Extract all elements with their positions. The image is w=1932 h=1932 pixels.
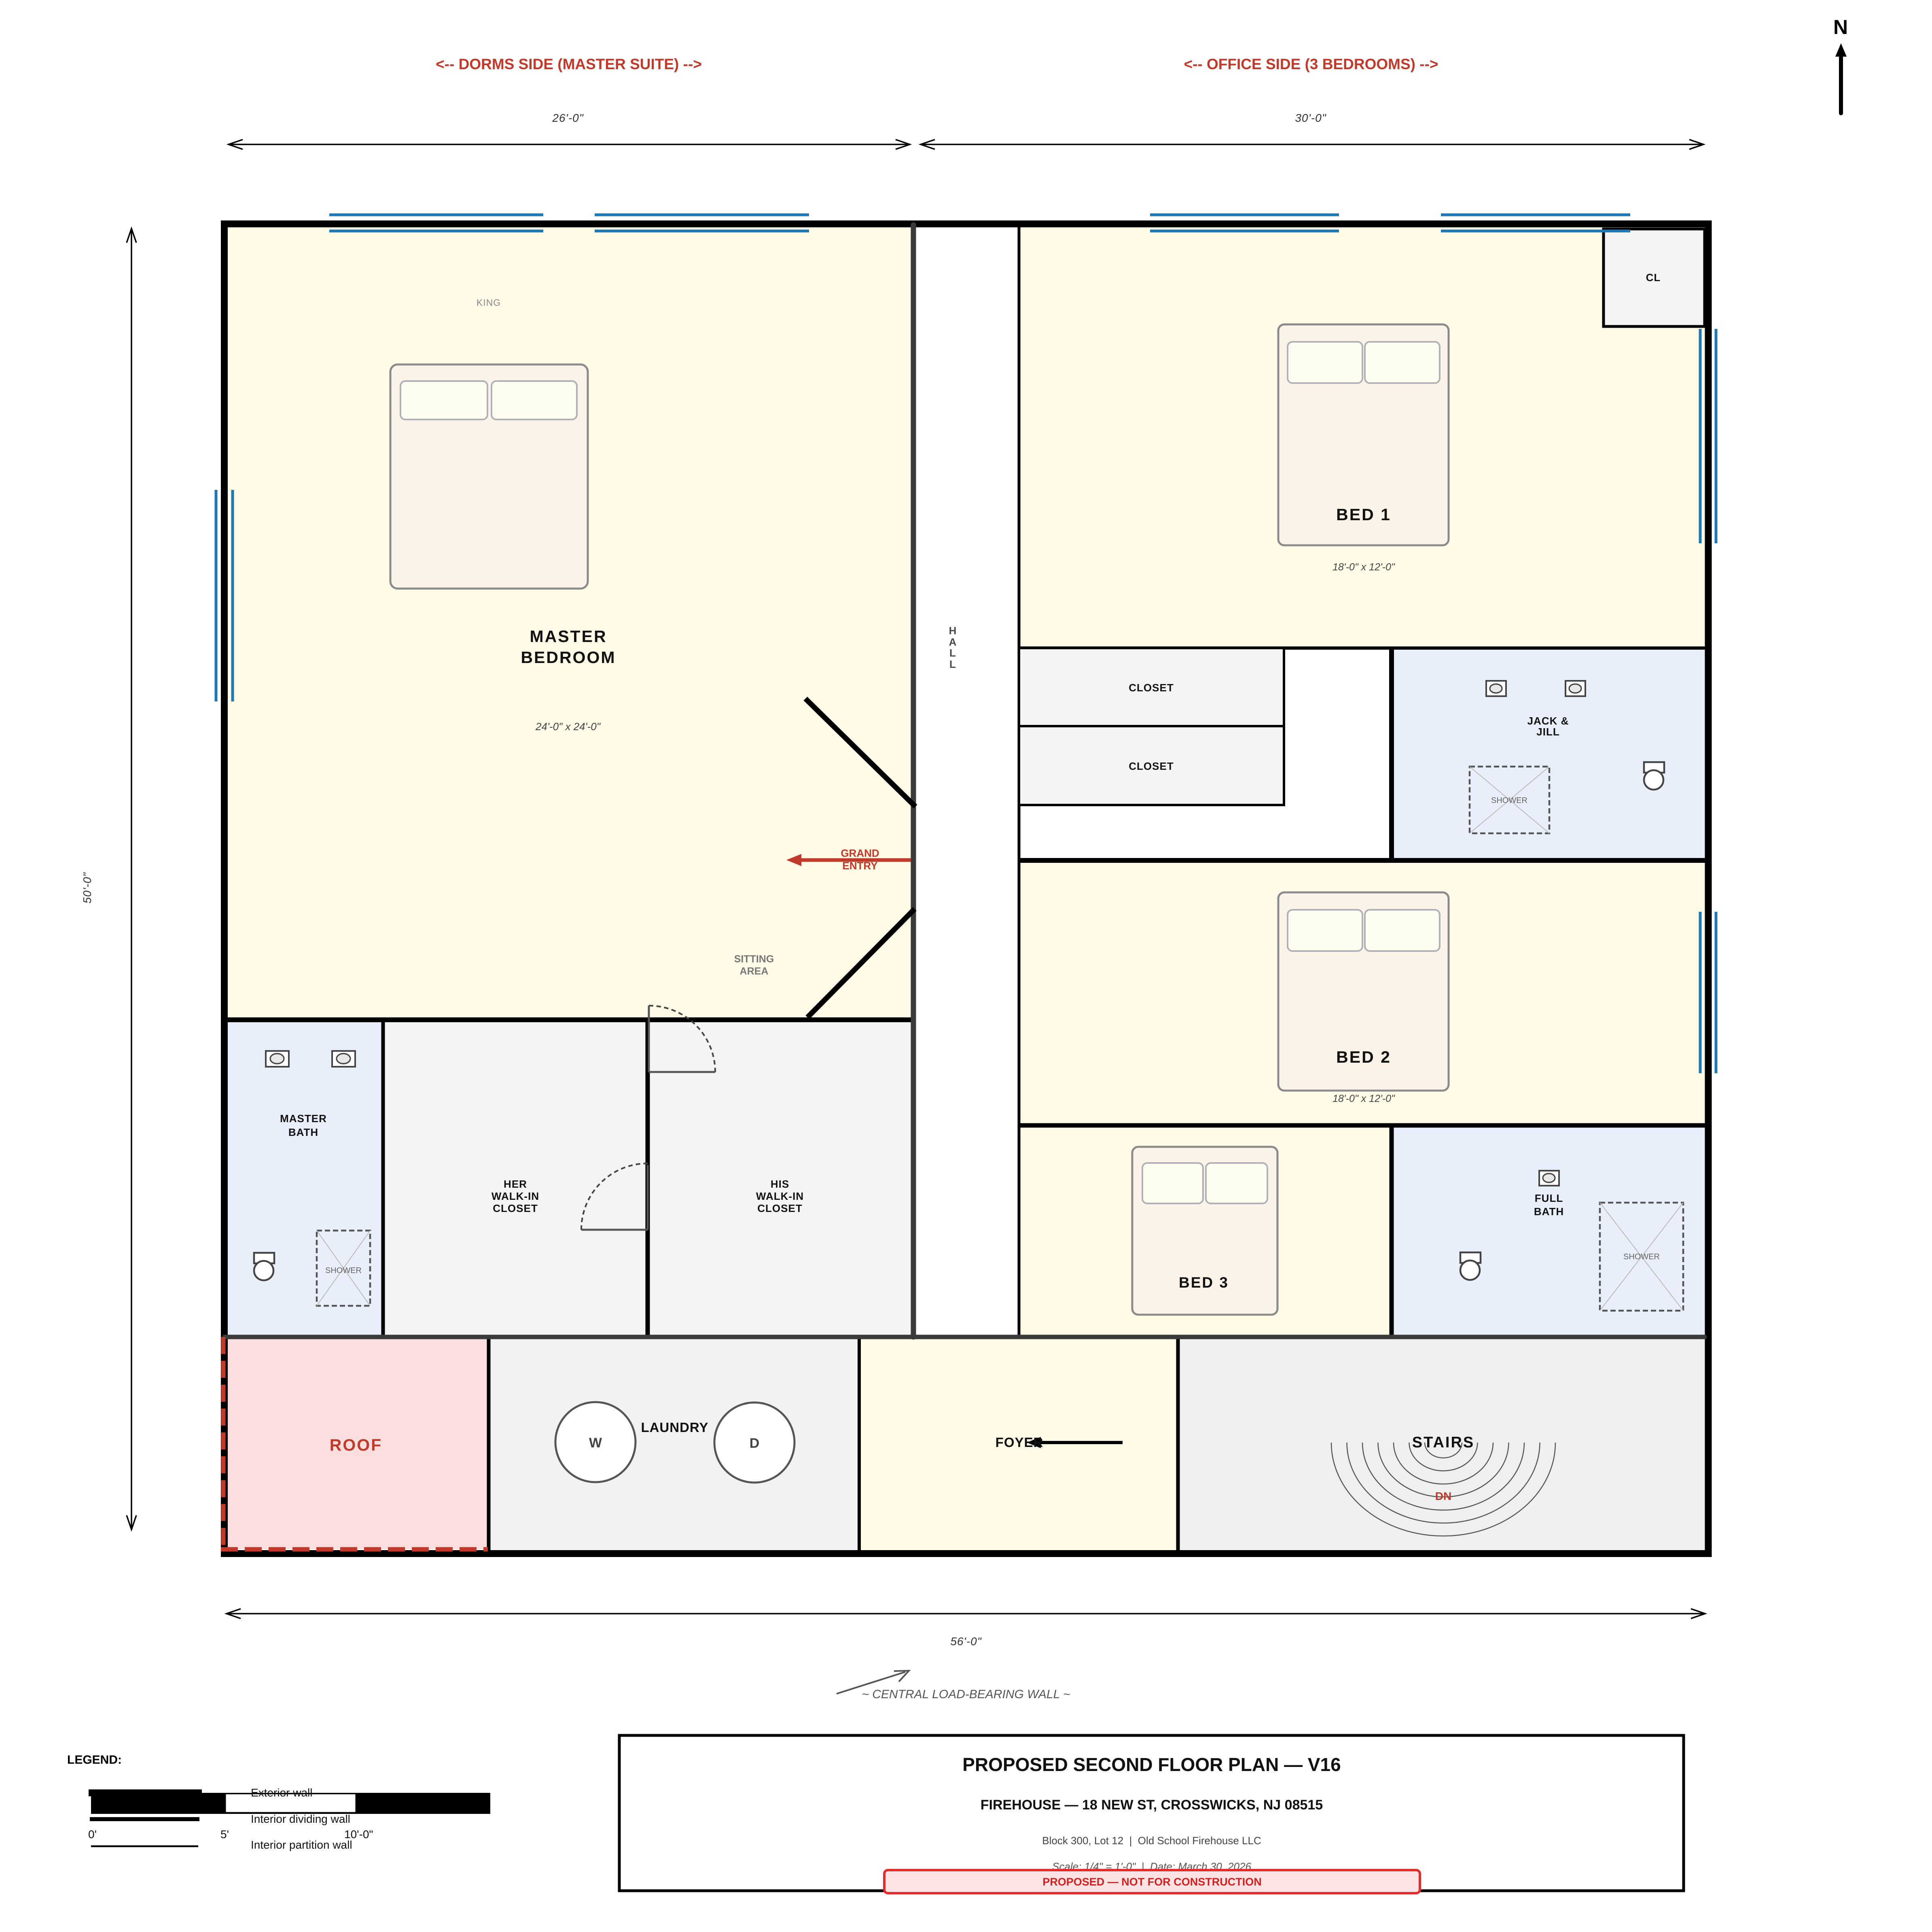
svg-text:GRAND: GRAND [841, 847, 879, 859]
svg-text:WALK-IN: WALK-IN [756, 1190, 804, 1202]
svg-text:CL: CL [1646, 271, 1661, 284]
svg-text:FULL: FULL [1535, 1192, 1563, 1204]
svg-text:BED 2: BED 2 [1336, 1048, 1391, 1066]
svg-text:W: W [589, 1435, 602, 1451]
svg-text:CLOSET: CLOSET [493, 1202, 538, 1214]
svg-text:18'-0" x 12'-0": 18'-0" x 12'-0" [1332, 1093, 1395, 1104]
svg-text:ENTRY: ENTRY [842, 860, 877, 872]
svg-text:SITTING: SITTING [734, 953, 774, 965]
svg-text:BED 3: BED 3 [1179, 1274, 1229, 1291]
svg-text:STAIRS: STAIRS [1412, 1434, 1475, 1451]
svg-text:Interior dividing wall: Interior dividing wall [251, 1813, 350, 1825]
svg-text:AREA: AREA [740, 966, 769, 977]
svg-text:JILL: JILL [1536, 726, 1559, 738]
svg-text:5': 5' [220, 1828, 229, 1841]
svg-text:CLOSET: CLOSET [1129, 760, 1174, 772]
svg-text:24'-0" x 24'-0": 24'-0" x 24'-0" [535, 720, 601, 733]
svg-text:Interior partition wall: Interior partition wall [251, 1839, 352, 1851]
svg-text:26'-0": 26'-0" [552, 112, 583, 124]
svg-text:30'-0": 30'-0" [1295, 112, 1326, 124]
svg-text:KING: KING [477, 297, 501, 308]
svg-text:SHOWER: SHOWER [1491, 796, 1527, 805]
svg-text:PROPOSED SECOND FLOOR PLAN — V: PROPOSED SECOND FLOOR PLAN — V16 [962, 1754, 1341, 1775]
svg-text:D: D [750, 1436, 760, 1451]
svg-text:CLOSET: CLOSET [757, 1202, 802, 1214]
svg-text:BATH: BATH [1534, 1205, 1564, 1218]
svg-text:BATH: BATH [288, 1126, 318, 1138]
svg-text:BED 1: BED 1 [1336, 505, 1391, 524]
svg-text:18'-0" x 12'-0": 18'-0" x 12'-0" [1332, 561, 1395, 573]
svg-text:DN: DN [1435, 1490, 1451, 1502]
svg-text:~ CENTRAL LOAD-BEARING WALL ~: ~ CENTRAL LOAD-BEARING WALL ~ [862, 1688, 1070, 1701]
svg-text:<-- DORMS SIDE (MASTER SUITE): <-- DORMS SIDE (MASTER SUITE) --> [436, 56, 702, 72]
svg-text:SHOWER: SHOWER [1623, 1252, 1660, 1261]
svg-text:MASTER: MASTER [280, 1112, 327, 1125]
svg-text:H: H [949, 625, 957, 637]
svg-text:BEDROOM: BEDROOM [521, 648, 616, 667]
svg-text:HIS: HIS [771, 1178, 789, 1190]
svg-text:<-- OFFICE SIDE (3 BEDROOMS) -: <-- OFFICE SIDE (3 BEDROOMS) --> [1184, 56, 1438, 72]
svg-text:PROPOSED — NOT FOR CONSTRUCTIO: PROPOSED — NOT FOR CONSTRUCTION [1042, 1876, 1262, 1888]
svg-text:HER: HER [504, 1178, 527, 1190]
svg-text:FIREHOUSE — 18 NEW ST, CROSSWI: FIREHOUSE — 18 NEW ST, CROSSWICKS, NJ 08… [981, 1797, 1323, 1813]
svg-text:A: A [949, 636, 957, 648]
svg-text:LEGEND:: LEGEND: [67, 1753, 122, 1767]
svg-text:56'-0": 56'-0" [950, 1635, 981, 1648]
svg-text:50'-0": 50'-0" [81, 872, 93, 903]
svg-text:JACK &: JACK & [1527, 715, 1569, 727]
svg-text:Block 300, Lot 12 | Old Scho: Block 300, Lot 12 | Old School Firehouse… [1042, 1835, 1261, 1847]
svg-text:CLOSET: CLOSET [1129, 682, 1174, 694]
svg-text:LAUNDRY: LAUNDRY [641, 1420, 708, 1435]
svg-text:SHOWER: SHOWER [325, 1266, 362, 1275]
svg-text:0': 0' [88, 1828, 97, 1841]
svg-text:N: N [1833, 16, 1848, 38]
svg-text:Exterior wall: Exterior wall [251, 1786, 312, 1799]
svg-text:L: L [949, 658, 956, 670]
svg-text:WALK-IN: WALK-IN [491, 1190, 539, 1202]
svg-text:FOYER: FOYER [996, 1435, 1044, 1450]
svg-text:MASTER: MASTER [530, 627, 607, 646]
svg-text:ROOF: ROOF [330, 1436, 382, 1454]
svg-text:L: L [949, 647, 956, 659]
